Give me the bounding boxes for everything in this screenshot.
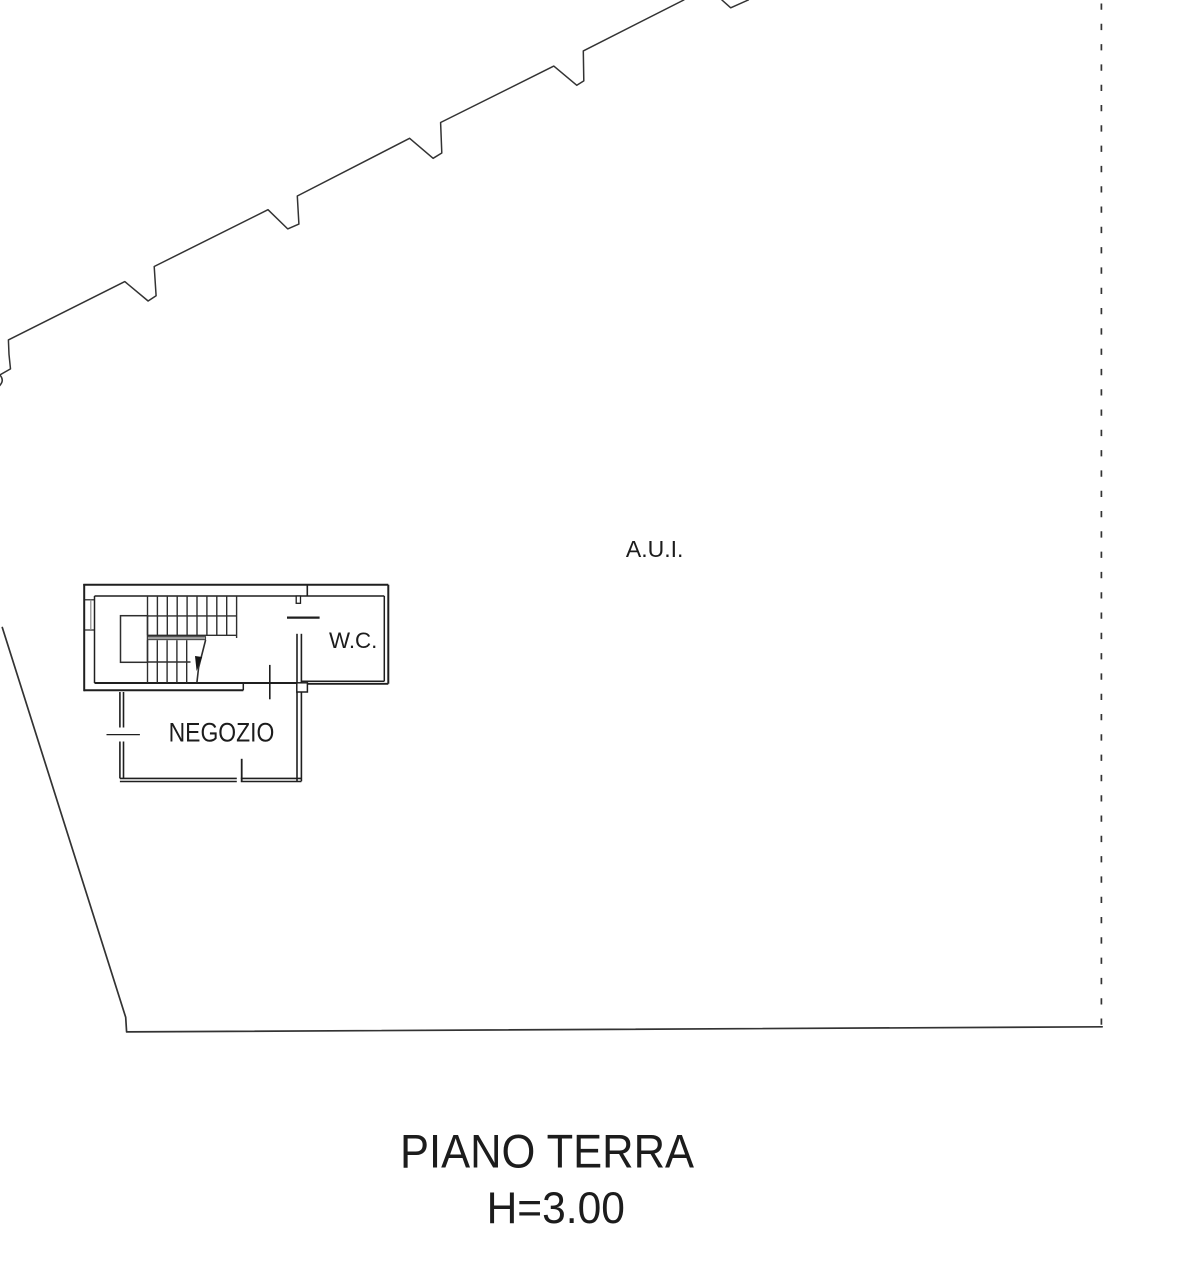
svg-text:W.C.: W.C. <box>329 628 377 653</box>
svg-text:A.U.I.: A.U.I. <box>626 536 684 562</box>
svg-text:NEGOZIO: NEGOZIO <box>169 717 275 747</box>
svg-text:PIANO TERRA: PIANO TERRA <box>400 1124 695 1177</box>
svg-text:H=3.00: H=3.00 <box>487 1184 625 1233</box>
